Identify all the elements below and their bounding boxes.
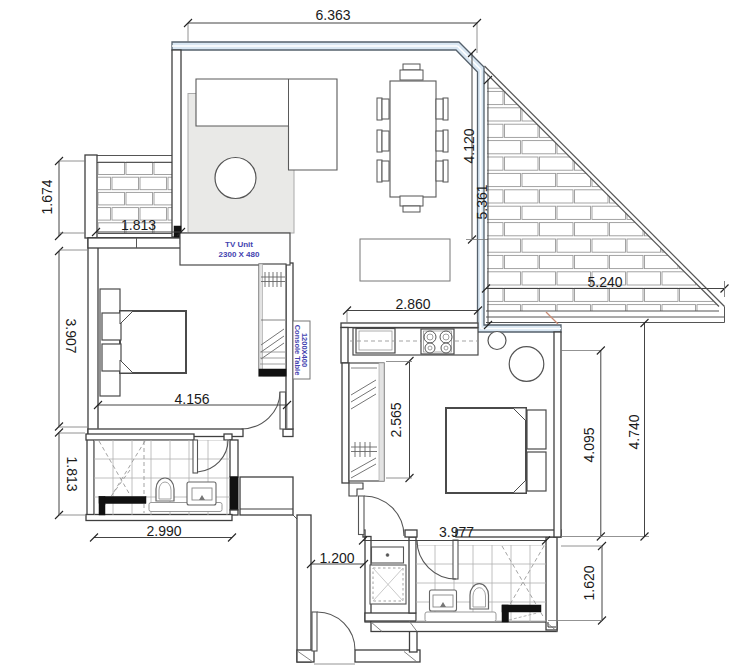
svg-text:3.907: 3.907 bbox=[63, 318, 79, 353]
svg-text:4.156: 4.156 bbox=[174, 391, 209, 407]
svg-text:2.990: 2.990 bbox=[146, 523, 181, 539]
svg-text:4.740: 4.740 bbox=[626, 414, 642, 449]
svg-text:2.565: 2.565 bbox=[388, 402, 404, 437]
svg-text:1.620: 1.620 bbox=[581, 565, 597, 600]
svg-text:1.813: 1.813 bbox=[64, 456, 80, 491]
svg-text:5.240: 5.240 bbox=[587, 274, 622, 290]
svg-text:2300 X 480: 2300 X 480 bbox=[219, 250, 260, 259]
svg-text:4.120: 4.120 bbox=[461, 128, 477, 163]
svg-text:1.200: 1.200 bbox=[319, 550, 354, 566]
svg-text:1200X400: 1200X400 bbox=[300, 333, 309, 367]
svg-text:1.674: 1.674 bbox=[39, 179, 55, 214]
svg-text:6.363: 6.363 bbox=[315, 7, 350, 23]
svg-text:3.977: 3.977 bbox=[439, 524, 474, 540]
svg-text:4.095: 4.095 bbox=[581, 427, 597, 462]
svg-text:TV Unit: TV Unit bbox=[225, 240, 253, 249]
svg-text:2.860: 2.860 bbox=[395, 296, 430, 312]
svg-text:5.361: 5.361 bbox=[474, 184, 490, 219]
svg-text:1.813: 1.813 bbox=[121, 217, 156, 233]
